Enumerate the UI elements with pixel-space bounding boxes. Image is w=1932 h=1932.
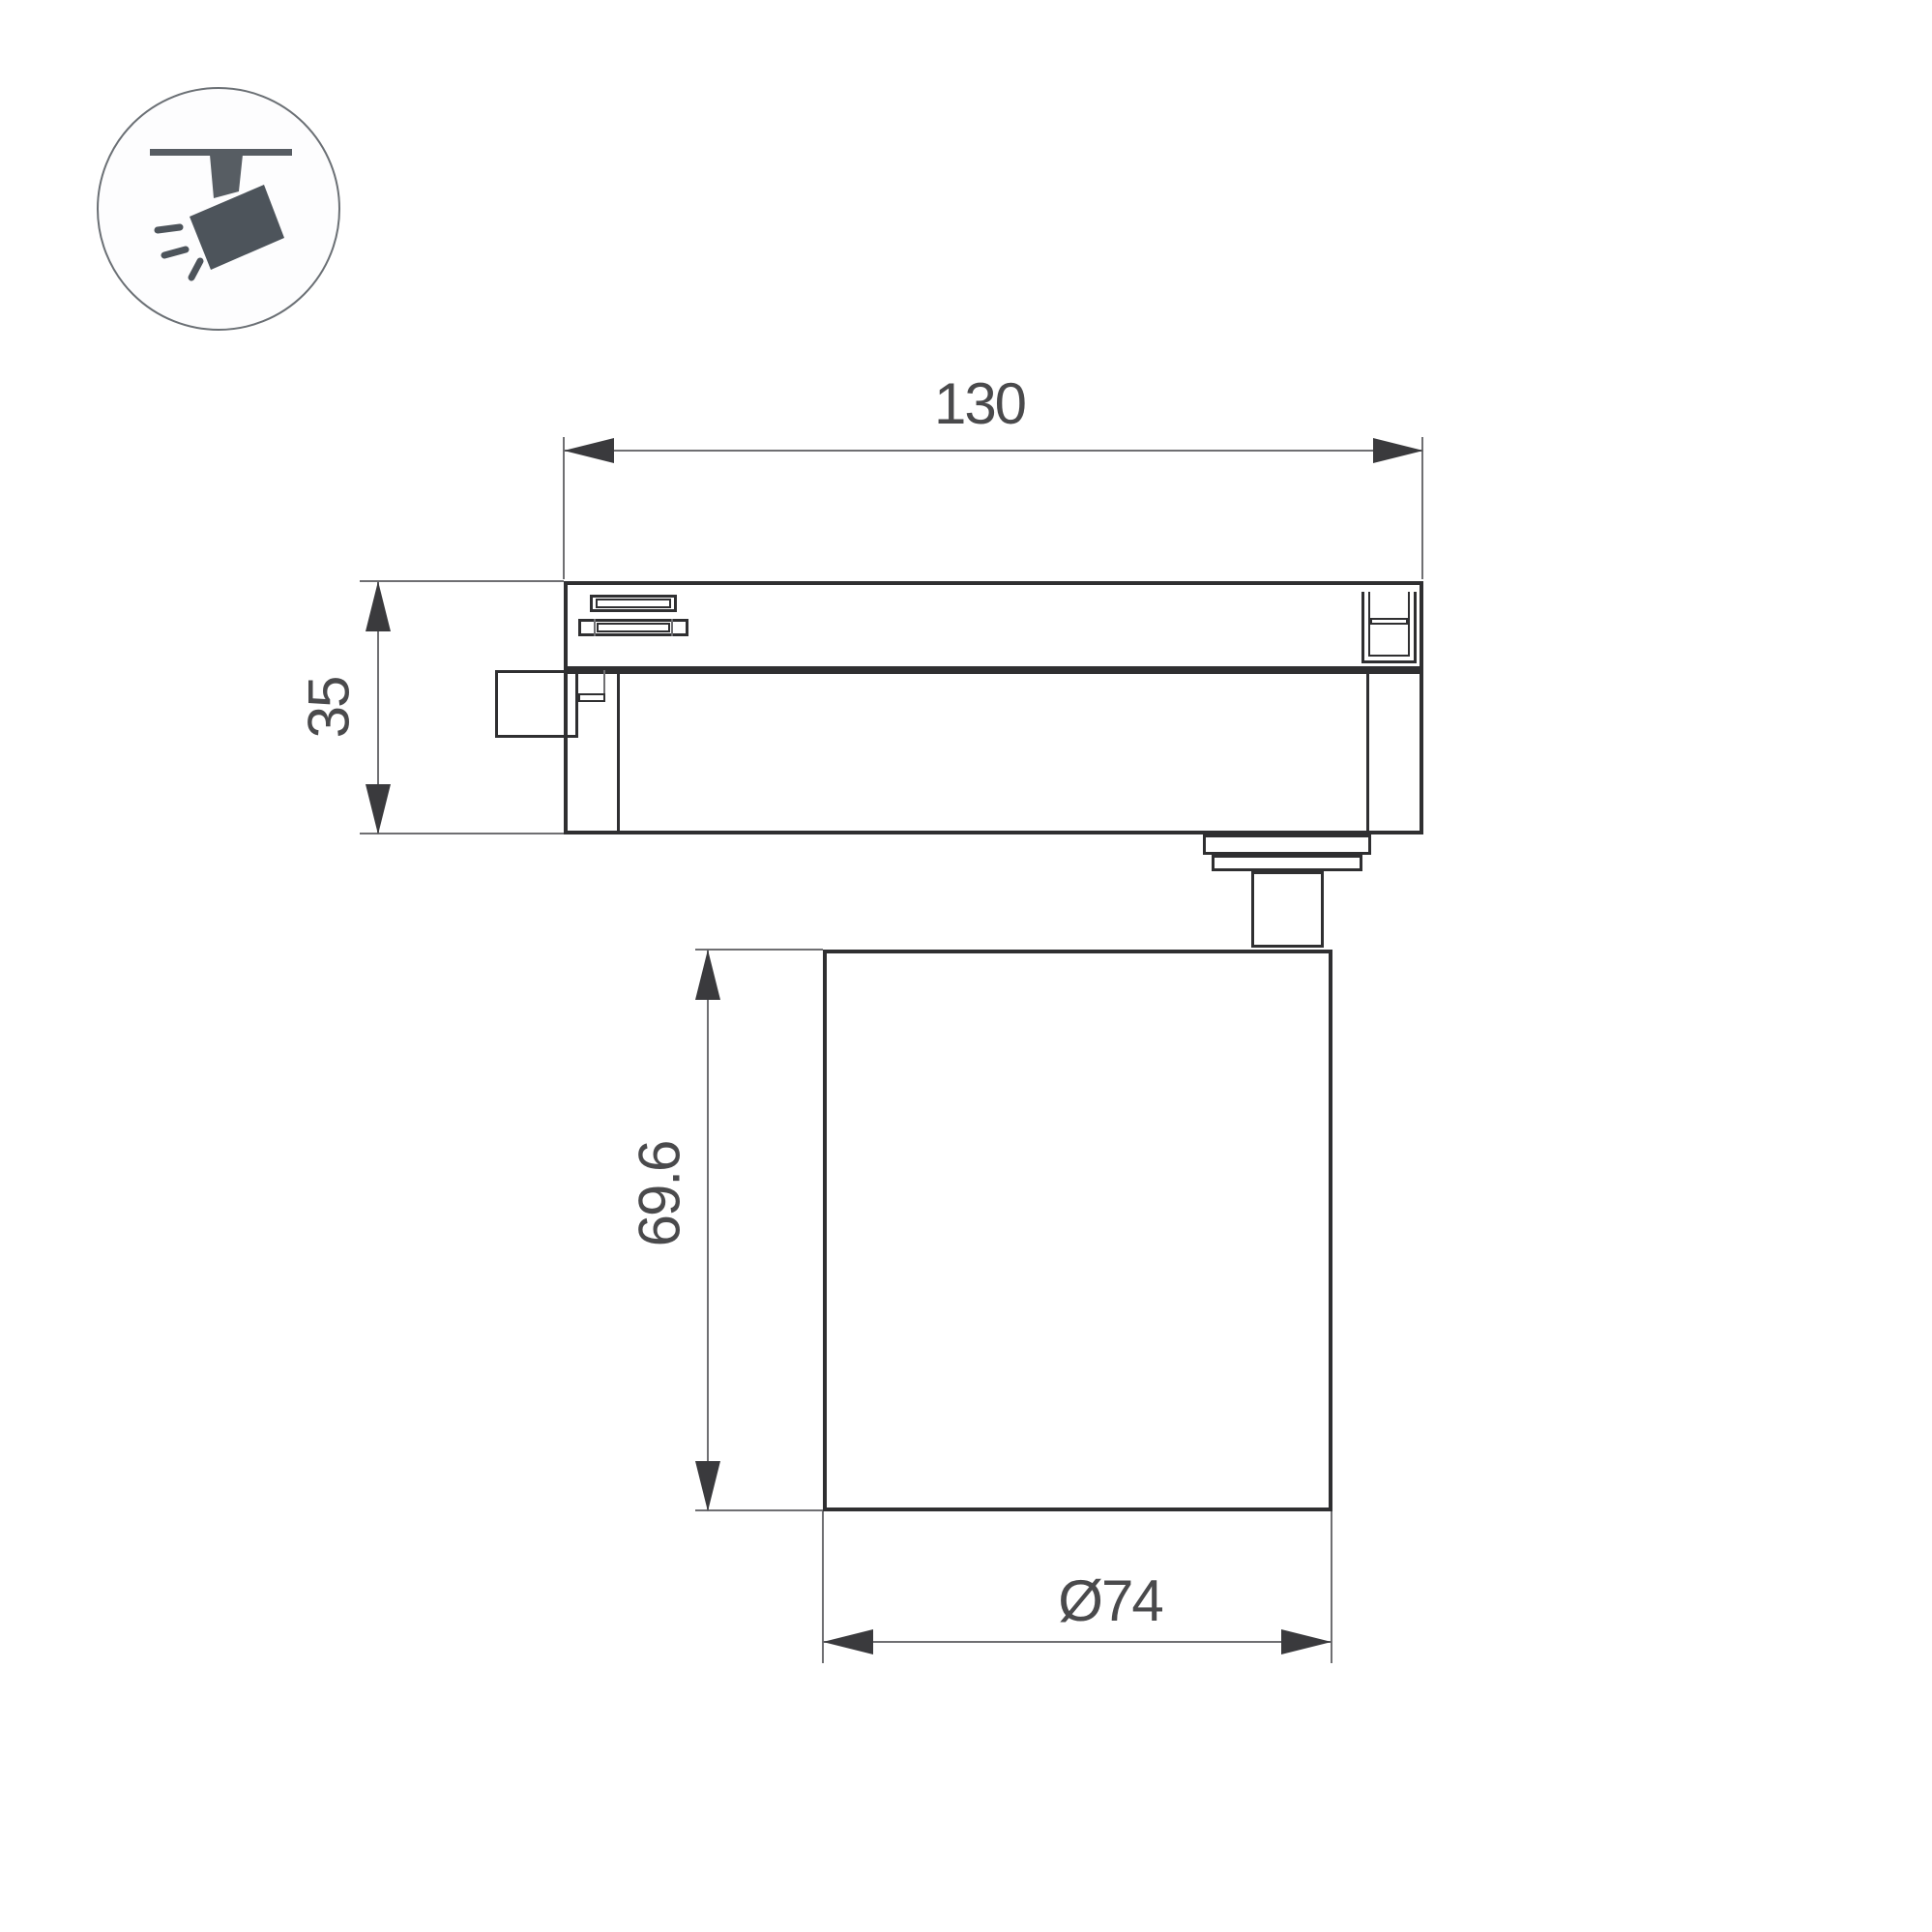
arrowhead-right — [1373, 438, 1423, 463]
icon-mount-stem — [210, 155, 243, 198]
dimension-value-head-diameter: Ø74 — [1058, 1567, 1161, 1634]
contact-slot-2-inner — [597, 623, 670, 632]
dimension-line — [707, 950, 709, 1511]
adapter-inner-divider-right — [1366, 670, 1369, 834]
dimension-line — [564, 450, 1423, 452]
dimension-value-adapter-height: 35 — [296, 678, 363, 739]
stem — [1251, 871, 1324, 948]
arrowhead-up — [695, 950, 720, 1000]
adapter-inner-divider-left — [617, 670, 620, 834]
dimension-value-track-length: 130 — [934, 370, 1025, 437]
technical-drawing-canvas: 130 35 69.6 Ø74 — [0, 0, 1932, 1932]
arrowhead-left — [823, 1629, 873, 1654]
arrowhead-right — [1281, 1629, 1332, 1654]
arrowhead-up — [366, 581, 391, 631]
locking-lever — [495, 670, 578, 738]
arrowhead-down — [695, 1461, 720, 1511]
dimension-line — [823, 1641, 1332, 1643]
dimension-value-head-height: 69.6 — [627, 1142, 693, 1247]
retaining-clip-rung — [1370, 618, 1408, 625]
lamp-head-outline — [823, 950, 1332, 1511]
contact-slot-2-divider-right — [671, 619, 673, 636]
pedestal-plate-lower — [1212, 855, 1362, 871]
track-spotlight-icon — [96, 85, 343, 333]
icon-ceiling-track — [150, 149, 292, 156]
lever-step — [578, 693, 605, 702]
adapter-upper-body-outline — [564, 581, 1423, 670]
arrowhead-left — [564, 438, 614, 463]
contact-slot-1-inner — [596, 599, 671, 608]
pedestal-plate-upper — [1203, 834, 1371, 855]
contact-slot-2-divider-left — [594, 619, 596, 636]
arrowhead-down — [366, 784, 391, 834]
adapter-lower-body-outline — [564, 670, 1423, 834]
